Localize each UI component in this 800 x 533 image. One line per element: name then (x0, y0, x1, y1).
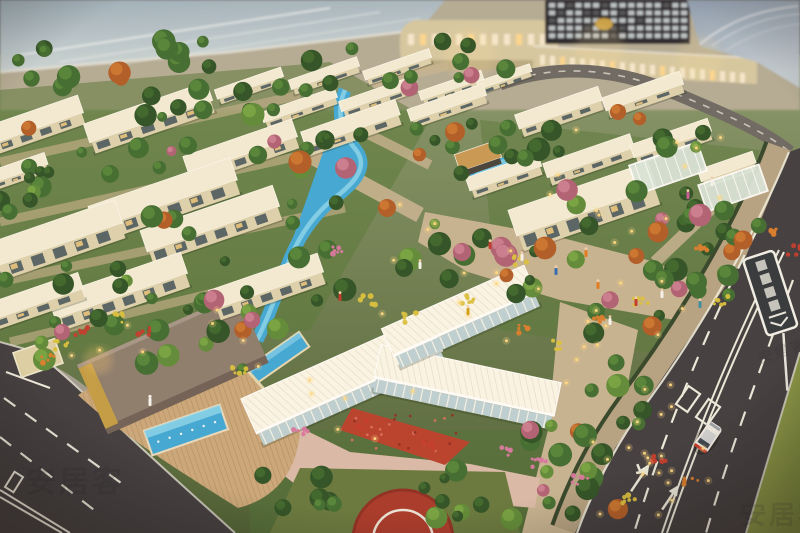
sand-table-model-scene: 安居客 安居客 安居客 (0, 0, 800, 533)
model-photo-stage: 安居客 安居客 安居客 (0, 0, 800, 533)
vignette-overlay (0, 0, 800, 533)
